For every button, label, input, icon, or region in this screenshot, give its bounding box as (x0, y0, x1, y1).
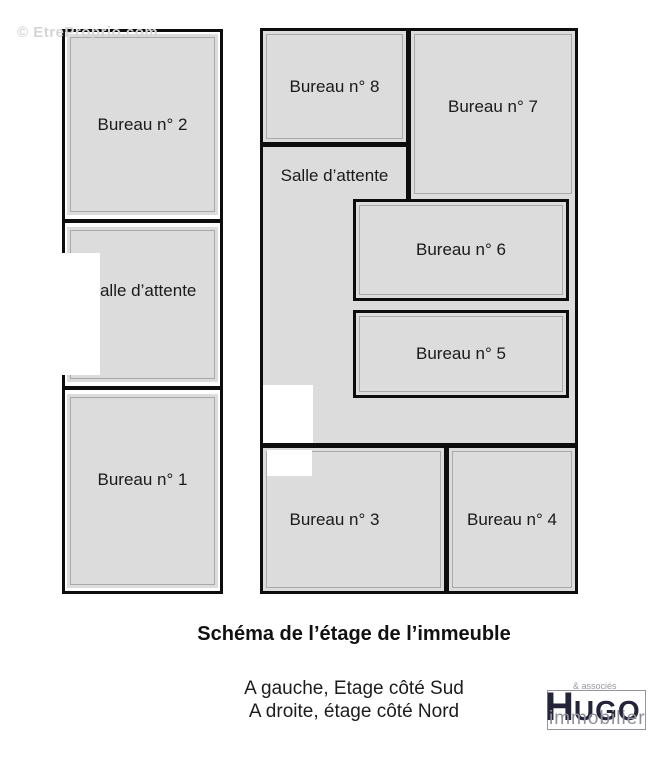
room-bureau-2: Bureau n° 2 (67, 34, 218, 215)
room-bureau-5: Bureau n° 5 (353, 310, 569, 398)
room-bureau-7-label: Bureau n° 7 (448, 97, 538, 117)
agency-logo-subtitle: immobilier (549, 710, 646, 727)
room-salle-attente-right-label: Salle d’attente (281, 166, 389, 186)
room-bureau-4-label: Bureau n° 4 (467, 510, 557, 530)
agency-logo: & associés HUGO immobilier (537, 679, 649, 732)
room-bureau-4: Bureau n° 4 (449, 448, 575, 591)
floorplan-right-wing: Bureau n° 8 Bureau n° 7 Salle d’attente … (260, 28, 578, 594)
wall-divider (65, 219, 220, 223)
room-bureau-7: Bureau n° 7 (411, 31, 575, 197)
room-bureau-5-label: Bureau n° 5 (416, 344, 506, 364)
room-salle-attente-left-label: Salle d’attente (89, 281, 197, 301)
room-bureau-2-label: Bureau n° 2 (98, 115, 188, 135)
watermark-text: © EtreProprio.com (17, 24, 158, 41)
door-opening (267, 450, 312, 476)
room-bureau-6: Bureau n° 6 (353, 199, 569, 301)
room-bureau-1-label: Bureau n° 1 (98, 470, 188, 490)
door-opening (60, 253, 100, 375)
room-bureau-8-label: Bureau n° 8 (290, 77, 380, 97)
room-bureau-1: Bureau n° 1 (67, 394, 218, 588)
door-opening (263, 385, 313, 443)
room-bureau-8: Bureau n° 8 (263, 31, 406, 142)
wall-divider (65, 386, 220, 390)
plan-title: Schéma de l’étage de l’immeuble (59, 623, 649, 646)
room-bureau-3-label: Bureau n° 3 (290, 510, 380, 530)
room-salle-attente-right: Salle d’attente (263, 147, 406, 205)
room-bureau-6-label: Bureau n° 6 (416, 240, 506, 260)
